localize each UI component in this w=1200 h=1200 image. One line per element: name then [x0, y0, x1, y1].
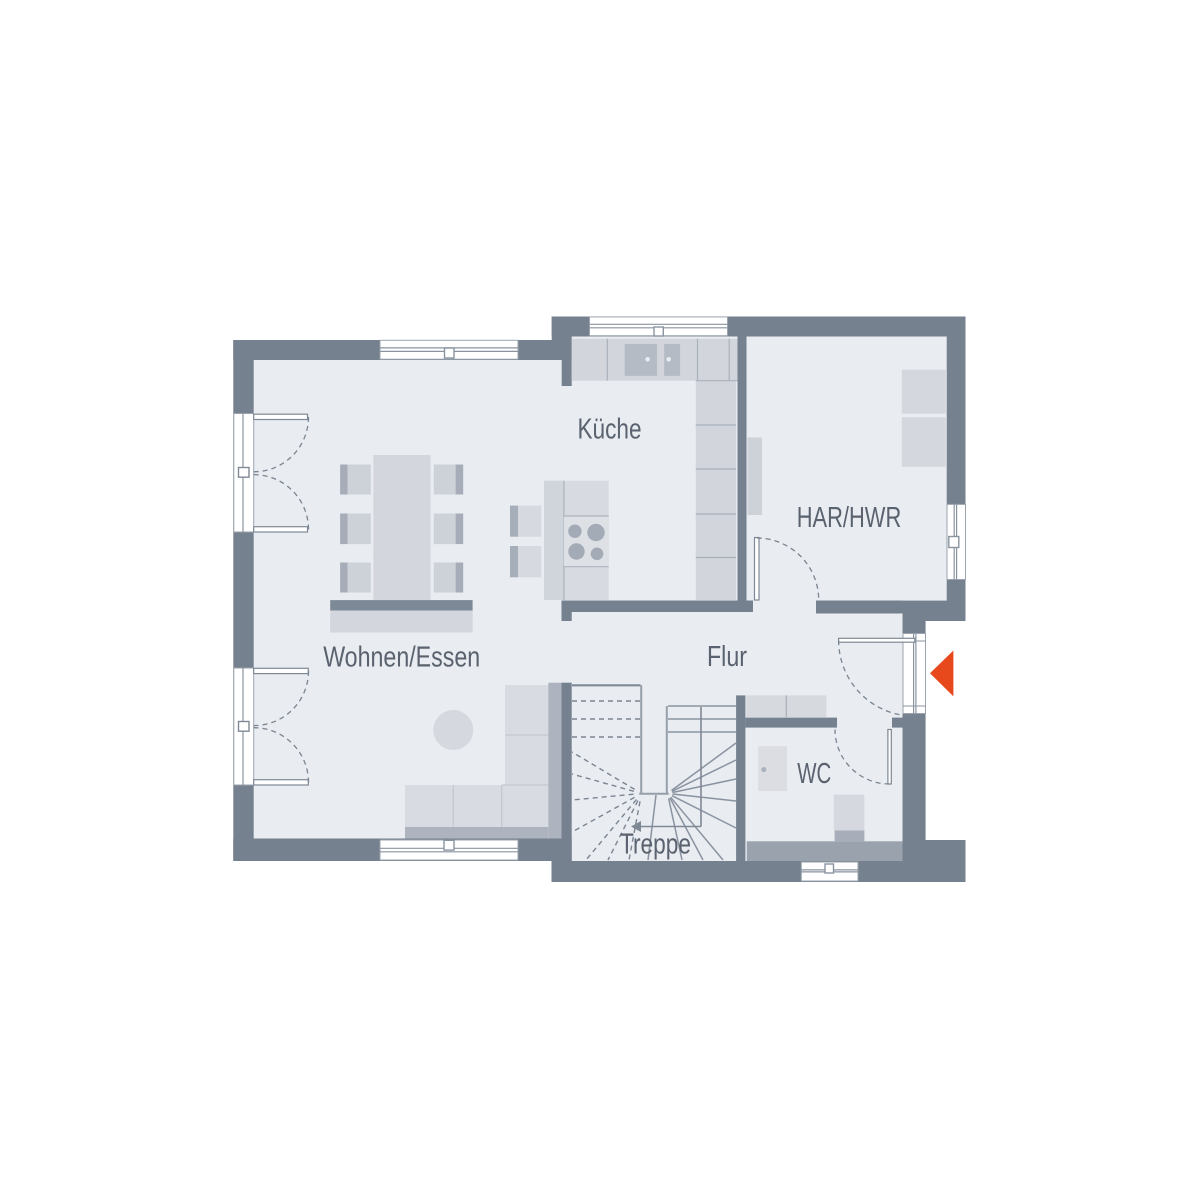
svg-text:Treppe: Treppe — [620, 829, 691, 861]
svg-text:HAR/HWR: HAR/HWR — [797, 502, 902, 534]
svg-text:Flur: Flur — [707, 641, 747, 673]
svg-text:Wohnen/Essen: Wohnen/Essen — [323, 642, 480, 674]
svg-text:Küche: Küche — [578, 414, 642, 446]
svg-text:WC: WC — [797, 758, 831, 790]
